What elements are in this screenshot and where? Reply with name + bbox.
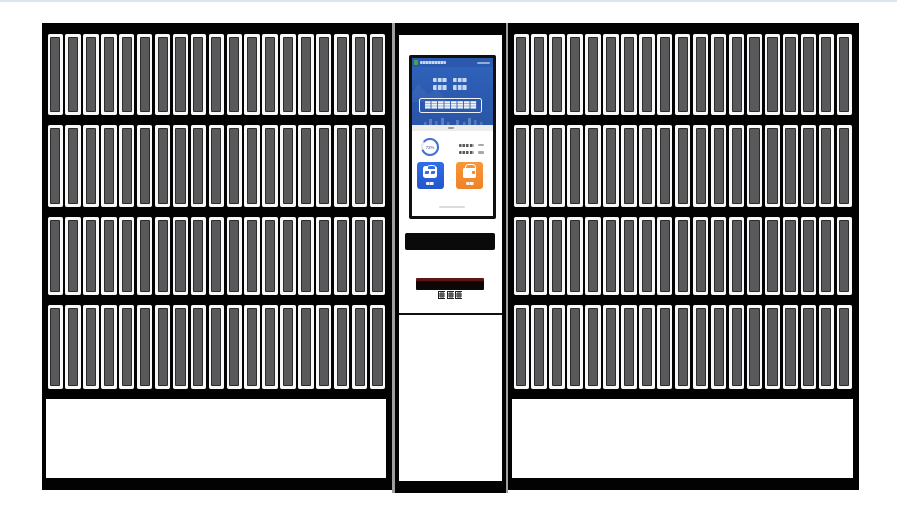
svg-text:72%: 72% (425, 144, 434, 149)
